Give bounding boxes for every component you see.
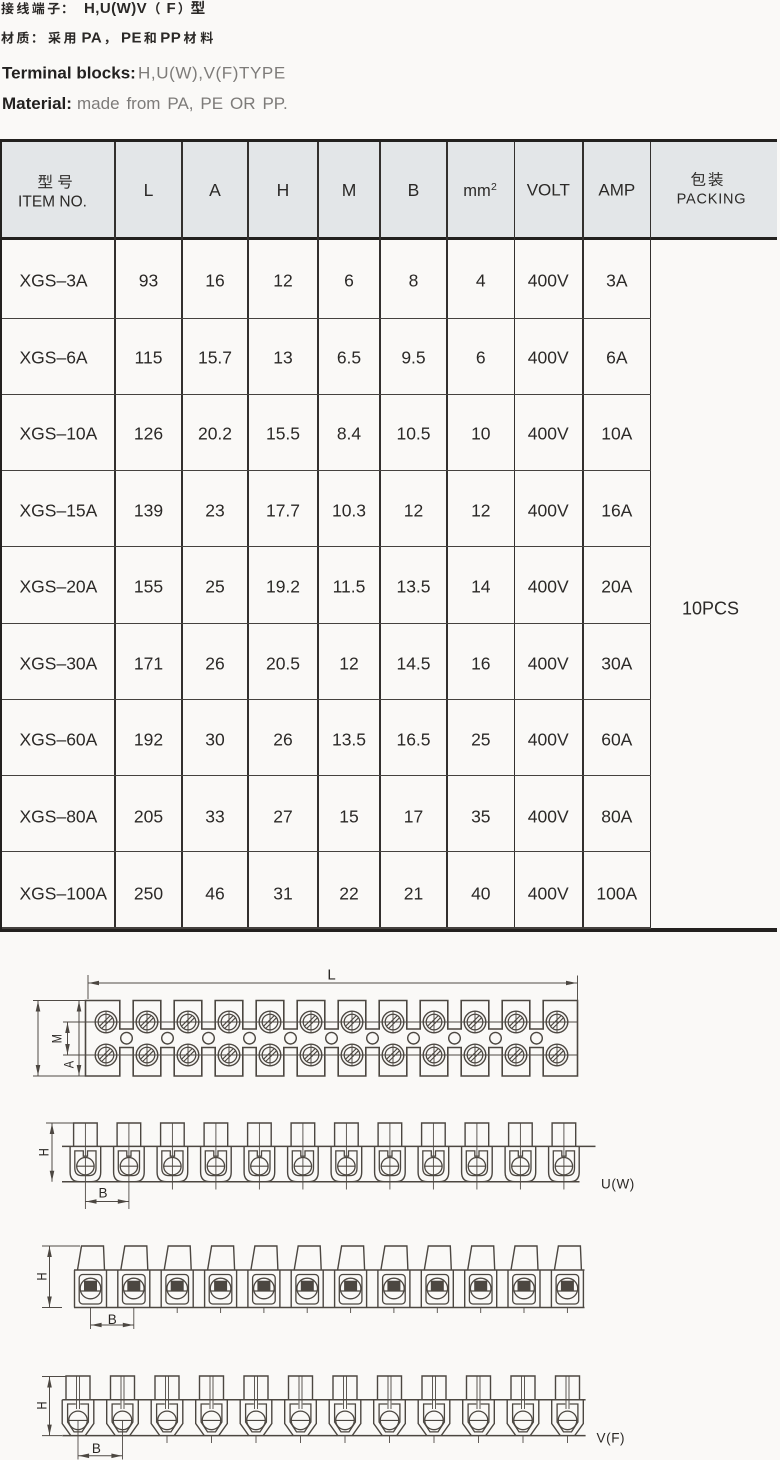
svg-text:XGS–80A: XGS–80A <box>20 806 98 826</box>
svg-text:H: H <box>277 180 290 200</box>
svg-text:Material:made from PA, PE OR P: Material:made from PA, PE OR PP. <box>2 94 288 113</box>
svg-text:400V: 400V <box>528 653 569 673</box>
svg-text:M: M <box>49 1034 64 1043</box>
svg-text:16: 16 <box>471 653 490 673</box>
svg-text:155: 155 <box>134 577 163 597</box>
svg-text:12: 12 <box>339 653 358 673</box>
svg-text:PE: PE <box>121 30 142 47</box>
svg-text:192: 192 <box>134 730 163 750</box>
svg-text:16: 16 <box>205 270 224 290</box>
svg-text:20A: 20A <box>601 577 632 597</box>
svg-text:205: 205 <box>134 806 163 826</box>
svg-text:20.2: 20.2 <box>198 424 232 444</box>
svg-text:U(W): U(W) <box>601 1177 635 1192</box>
svg-text:60A: 60A <box>601 730 632 750</box>
svg-text:126: 126 <box>134 424 163 444</box>
svg-text:10: 10 <box>471 424 491 444</box>
svg-text:XGS–60A: XGS–60A <box>20 730 98 750</box>
svg-text:V(F): V(F) <box>597 1431 626 1446</box>
svg-text:139: 139 <box>134 500 163 520</box>
svg-text:13: 13 <box>273 347 292 367</box>
svg-text:400V: 400V <box>528 806 569 826</box>
svg-text:B: B <box>108 1312 117 1327</box>
svg-text:400V: 400V <box>528 730 569 750</box>
svg-text:3A: 3A <box>606 270 628 290</box>
svg-text:ITEM NO.: ITEM NO. <box>18 194 87 211</box>
svg-text:9.5: 9.5 <box>401 347 425 367</box>
svg-text:10A: 10A <box>601 424 632 444</box>
svg-text:XGS–100A: XGS–100A <box>20 883 108 903</box>
svg-text:400V: 400V <box>528 577 569 597</box>
svg-text:PP: PP <box>160 30 181 47</box>
svg-text:171: 171 <box>134 653 163 673</box>
svg-text:40: 40 <box>471 883 491 903</box>
svg-text:15: 15 <box>339 806 358 826</box>
svg-text:L: L <box>144 180 154 200</box>
svg-text:16.5: 16.5 <box>396 730 430 750</box>
svg-text:115: 115 <box>135 347 163 367</box>
svg-text:XGS–30A: XGS–30A <box>20 653 98 673</box>
svg-text:33: 33 <box>205 806 224 826</box>
svg-text:8.4: 8.4 <box>337 424 362 444</box>
svg-text:19.2: 19.2 <box>266 577 300 597</box>
svg-text:400V: 400V <box>528 270 569 290</box>
svg-text:2: 2 <box>491 181 497 193</box>
svg-text:A: A <box>61 1060 76 1068</box>
svg-text:25: 25 <box>205 577 224 597</box>
svg-text:PACKING: PACKING <box>677 192 747 208</box>
svg-text:AMP: AMP <box>598 181 635 200</box>
svg-text:M: M <box>342 180 357 200</box>
svg-text:14: 14 <box>471 577 491 597</box>
svg-text:17: 17 <box>404 806 423 826</box>
svg-text:31: 31 <box>273 883 292 903</box>
svg-text:Terminal blocks:H,U(W),V(F)TYP: Terminal blocks:H,U(W),V(F)TYPE <box>2 64 286 83</box>
svg-text:XGS–10A: XGS–10A <box>20 424 98 444</box>
svg-text:B: B <box>98 1186 107 1201</box>
svg-text:30A: 30A <box>601 653 632 673</box>
svg-text:17.7: 17.7 <box>266 500 300 520</box>
svg-text:4: 4 <box>476 270 486 290</box>
svg-text:400V: 400V <box>528 883 569 903</box>
svg-text:23: 23 <box>205 500 224 520</box>
svg-text:21: 21 <box>404 883 423 903</box>
svg-text:6.5: 6.5 <box>337 347 361 367</box>
svg-text:6: 6 <box>344 270 354 290</box>
svg-text:400V: 400V <box>528 500 569 520</box>
svg-text:10PCS: 10PCS <box>682 599 739 619</box>
svg-text:B: B <box>92 1441 101 1456</box>
svg-text:46: 46 <box>205 883 224 903</box>
svg-text:XGS–20A: XGS–20A <box>20 577 98 597</box>
svg-text:H,U(W)V: H,U(W)V <box>84 0 147 17</box>
svg-text:25: 25 <box>471 730 490 750</box>
svg-text:26: 26 <box>273 730 292 750</box>
svg-text:12: 12 <box>273 270 292 290</box>
svg-text:H: H <box>37 1148 52 1156</box>
svg-text:15.5: 15.5 <box>266 424 300 444</box>
svg-text:30: 30 <box>205 730 225 750</box>
svg-text:26: 26 <box>205 653 224 673</box>
svg-text:H: H <box>34 1402 49 1410</box>
svg-text:13.5: 13.5 <box>396 577 430 597</box>
svg-text:100A: 100A <box>596 883 637 903</box>
svg-text:27: 27 <box>273 806 292 826</box>
svg-text:35: 35 <box>471 806 490 826</box>
svg-text:L: L <box>327 967 335 984</box>
svg-text:10.5: 10.5 <box>396 424 430 444</box>
svg-text:XGS–15A: XGS–15A <box>20 500 98 520</box>
svg-text:PA: PA <box>82 30 103 47</box>
svg-text:VOLT: VOLT <box>527 181 570 200</box>
svg-text:13.5: 13.5 <box>332 730 366 750</box>
svg-text:12: 12 <box>471 500 490 520</box>
svg-text:15.7: 15.7 <box>198 347 232 367</box>
svg-text:14.5: 14.5 <box>396 653 430 673</box>
svg-text:F: F <box>167 0 176 17</box>
svg-text:A: A <box>209 180 221 200</box>
svg-text:10.3: 10.3 <box>332 500 366 520</box>
svg-text:6A: 6A <box>606 347 628 367</box>
svg-text:16A: 16A <box>601 500 632 520</box>
svg-text:400V: 400V <box>528 424 569 444</box>
svg-text:8: 8 <box>409 270 419 290</box>
svg-text:H: H <box>34 1273 49 1281</box>
svg-text:XGS–6A: XGS–6A <box>20 347 88 367</box>
svg-text:22: 22 <box>339 883 358 903</box>
svg-text:20.5: 20.5 <box>266 653 300 673</box>
svg-text:12: 12 <box>404 500 423 520</box>
svg-text:mm: mm <box>463 182 491 200</box>
svg-text:80A: 80A <box>601 806 632 826</box>
svg-text:93: 93 <box>139 270 158 290</box>
svg-text:XGS–3A: XGS–3A <box>20 270 88 290</box>
svg-text:250: 250 <box>134 883 163 903</box>
svg-text:11.5: 11.5 <box>333 577 366 597</box>
svg-text:6: 6 <box>476 347 486 367</box>
svg-text:B: B <box>408 180 420 200</box>
svg-text:400V: 400V <box>528 347 569 367</box>
